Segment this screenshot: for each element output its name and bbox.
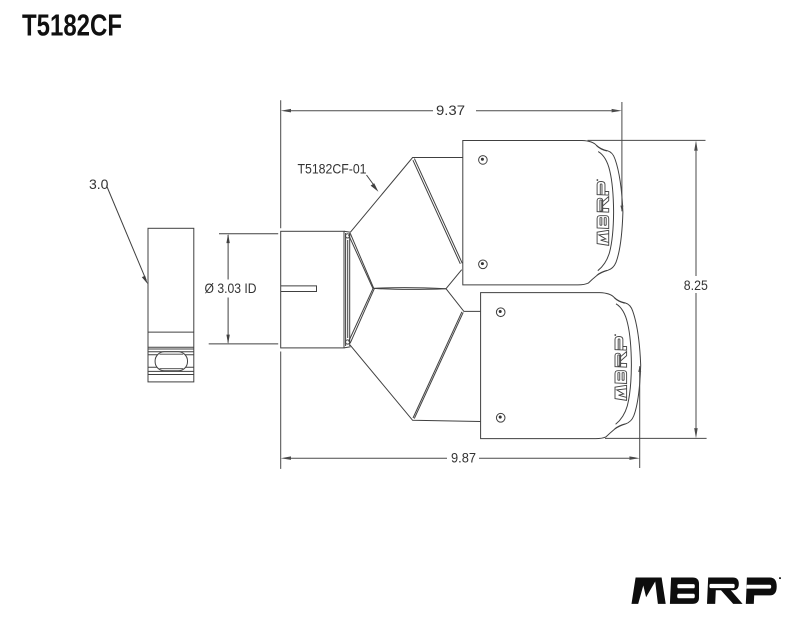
- svg-text:9.87: 9.87: [451, 450, 476, 466]
- svg-text:3.0: 3.0: [89, 176, 109, 192]
- svg-text:9.37: 9.37: [436, 102, 465, 118]
- svg-text:8.25: 8.25: [684, 277, 708, 293]
- svg-text:T5182CF: T5182CF: [22, 8, 122, 43]
- svg-text:Ø 3.03 ID: Ø 3.03 ID: [205, 280, 257, 296]
- svg-text:T5182CF-01: T5182CF-01: [298, 161, 367, 177]
